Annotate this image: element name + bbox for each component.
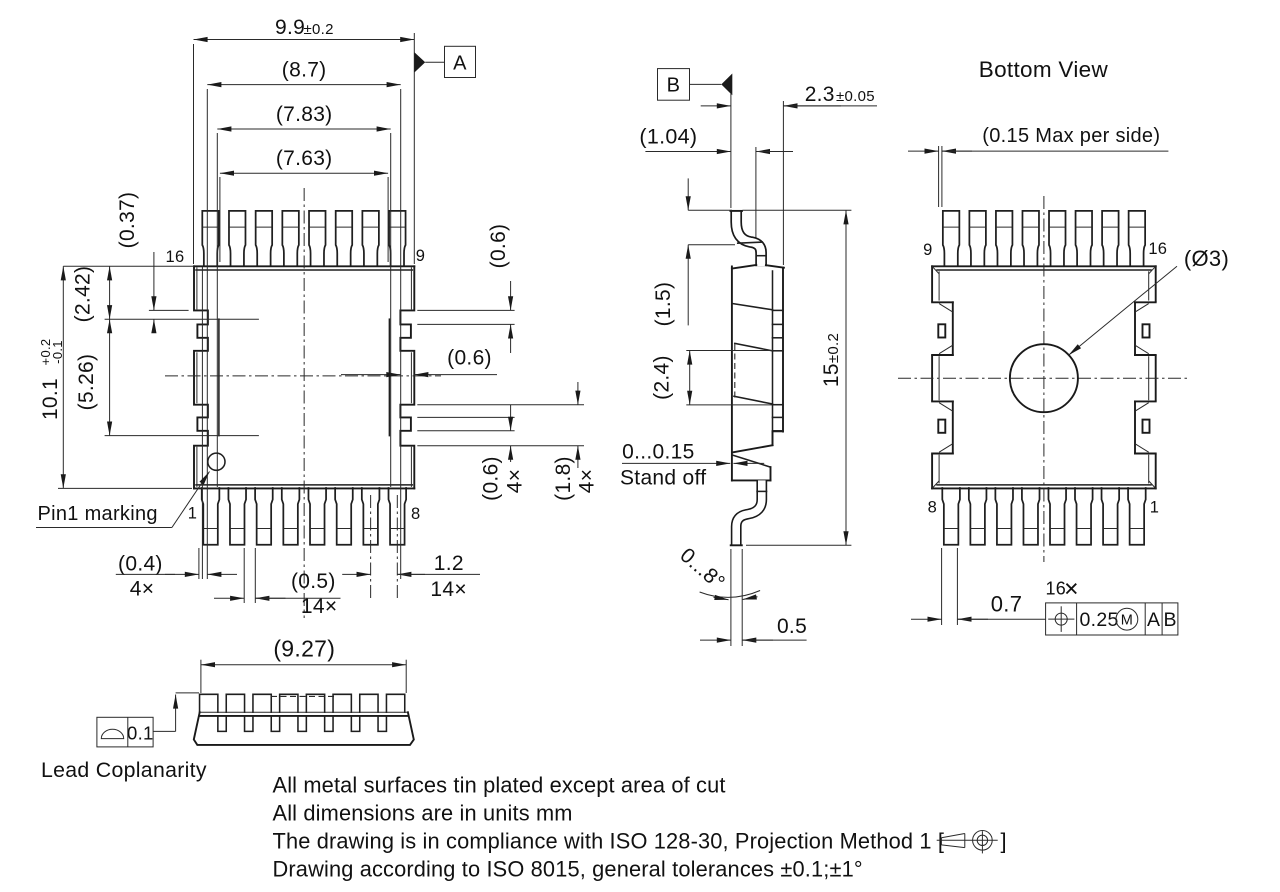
svg-text:4×: 4× <box>130 578 155 601</box>
svg-text:All metal surfaces tin plated: All metal surfaces tin plated except are… <box>273 773 726 798</box>
svg-text:(7.83): (7.83) <box>276 103 333 126</box>
svg-text:(0.6): (0.6) <box>447 347 492 370</box>
svg-text:(Ø3): (Ø3) <box>1184 246 1229 271</box>
svg-text:0.5: 0.5 <box>777 615 807 638</box>
svg-text:±0.2: ±0.2 <box>304 21 334 38</box>
svg-text:(0.4): (0.4) <box>118 553 163 576</box>
svg-text:(2.42): (2.42) <box>71 266 94 323</box>
svg-text:✕: ✕ <box>1063 580 1079 601</box>
svg-text:(0.6): (0.6) <box>487 224 510 269</box>
svg-text:(2.4): (2.4) <box>650 355 673 400</box>
svg-text:(1.8): (1.8) <box>552 456 575 501</box>
svg-text:±0.05: ±0.05 <box>836 88 875 105</box>
svg-text:4×: 4× <box>576 469 599 494</box>
svg-text:1.2: 1.2 <box>434 552 464 575</box>
svg-text:0...0.15: 0...0.15 <box>622 441 694 464</box>
svg-text:1: 1 <box>1150 499 1159 517</box>
svg-text:9: 9 <box>416 247 425 265</box>
svg-text:(1.04): (1.04) <box>639 125 697 149</box>
svg-text:Lead Coplanarity: Lead Coplanarity <box>41 758 207 782</box>
svg-text:The drawing is in compliance w: The drawing is in compliance with ISO 12… <box>273 829 945 854</box>
svg-text:Bottom View: Bottom View <box>979 57 1109 82</box>
svg-text:A: A <box>453 52 467 74</box>
svg-text:16: 16 <box>1148 240 1167 258</box>
svg-text:10.1: 10.1 <box>39 378 62 420</box>
svg-text:9: 9 <box>923 241 932 259</box>
svg-text:Pin1 marking: Pin1 marking <box>38 503 158 525</box>
svg-text:B: B <box>667 75 681 97</box>
svg-text:All dimensions are in units mm: All dimensions are in units mm <box>273 801 573 826</box>
svg-text:-0.1: -0.1 <box>50 340 65 364</box>
svg-text:2.3: 2.3 <box>805 83 835 106</box>
svg-text:0.7: 0.7 <box>991 592 1022 617</box>
svg-text:A: A <box>1147 609 1160 631</box>
svg-text:9.9: 9.9 <box>275 16 305 39</box>
svg-text:8: 8 <box>411 505 420 523</box>
svg-text:]: ] <box>1001 829 1007 854</box>
svg-text:0.1: 0.1 <box>127 723 154 744</box>
svg-text:(5.26): (5.26) <box>75 354 98 411</box>
svg-text:(1.5): (1.5) <box>652 282 675 327</box>
svg-text:1: 1 <box>188 505 197 523</box>
svg-text:14×: 14× <box>430 578 467 601</box>
svg-text:4×: 4× <box>504 469 527 494</box>
svg-text:(0.15 Max per side): (0.15 Max per side) <box>982 125 1160 147</box>
svg-text:Stand off: Stand off <box>620 467 706 490</box>
svg-text:Drawing according to ISO 8015,: Drawing according to ISO 8015, general t… <box>273 857 863 882</box>
svg-text:(9.27): (9.27) <box>273 636 335 662</box>
svg-text:B: B <box>1164 609 1177 631</box>
svg-text:0.25: 0.25 <box>1080 609 1119 631</box>
svg-text:(7.63): (7.63) <box>276 147 333 170</box>
svg-text:(0.37): (0.37) <box>116 192 139 249</box>
svg-text:(8.7): (8.7) <box>282 59 327 82</box>
svg-text:(0.6): (0.6) <box>480 456 503 501</box>
svg-text:M: M <box>1121 612 1133 628</box>
svg-text:16: 16 <box>166 248 185 266</box>
svg-text:(0.5): (0.5) <box>291 570 336 593</box>
svg-text:8: 8 <box>928 498 937 516</box>
